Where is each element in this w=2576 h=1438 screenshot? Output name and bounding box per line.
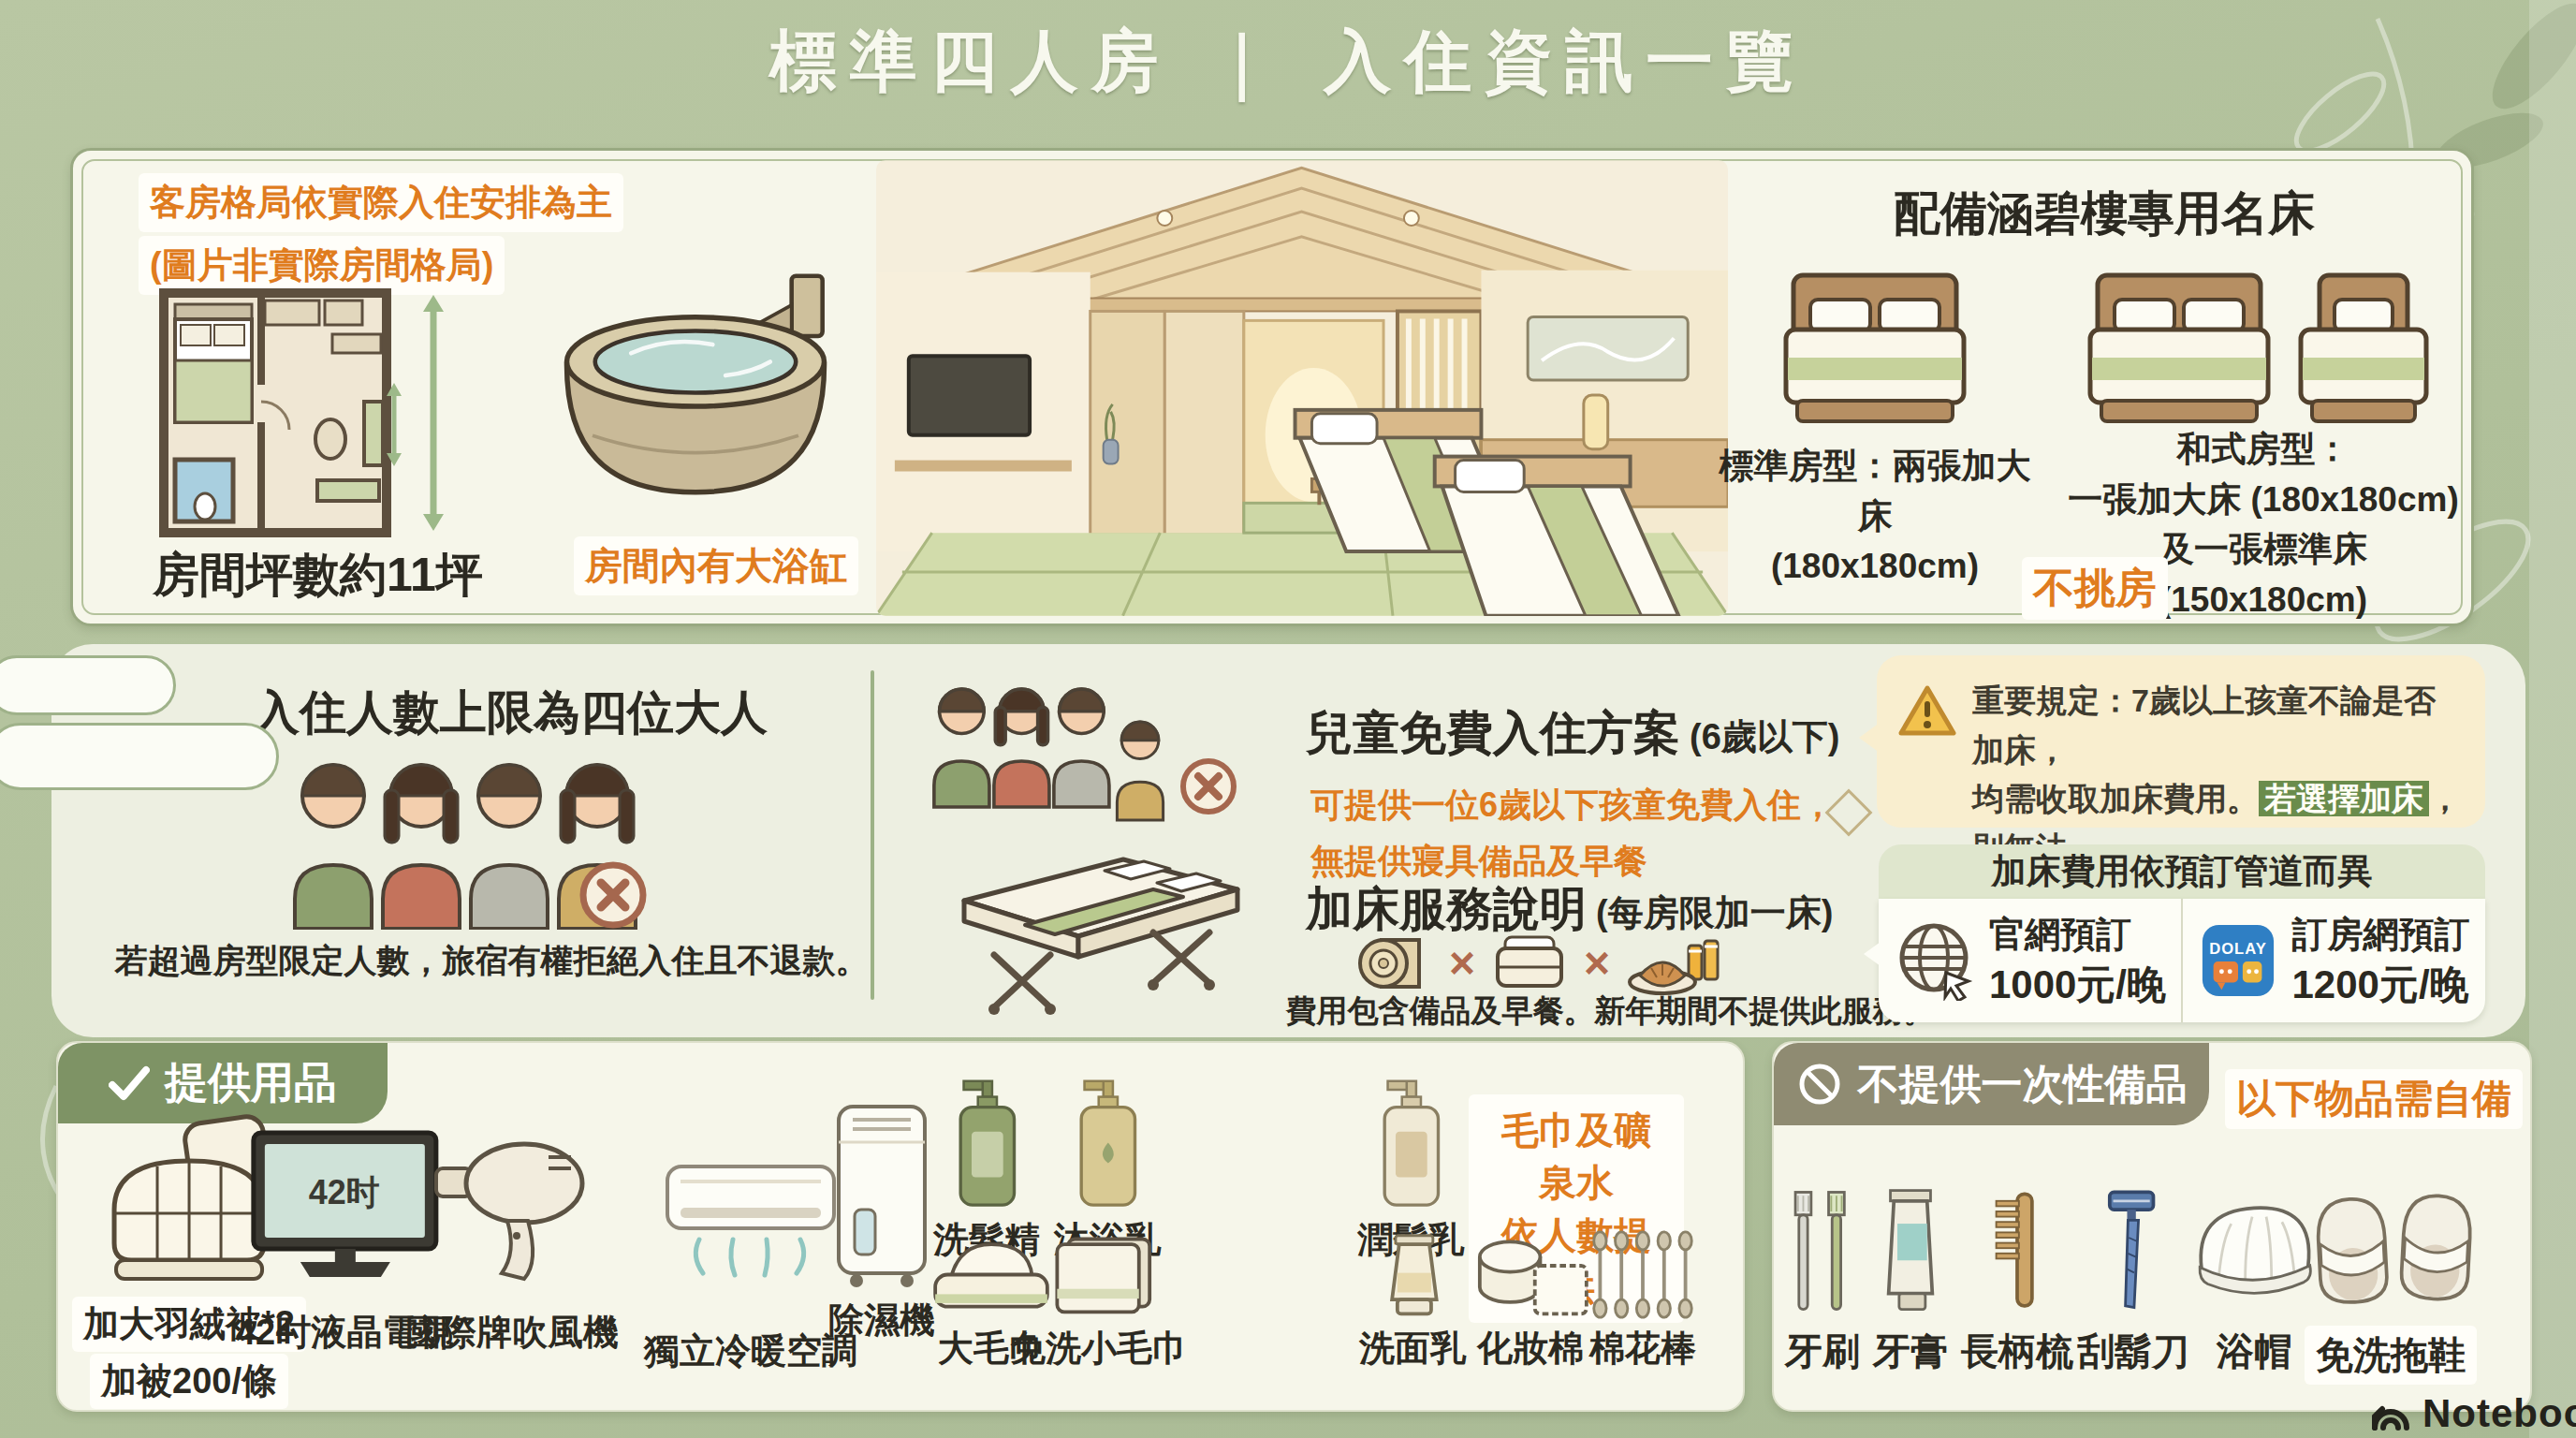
- conditioner-icon: [1359, 1075, 1462, 1211]
- single-bed-icon: [2293, 268, 2434, 432]
- room-overview-card: 客房格局依實際入住安排為主 (圖片非實際房間格局) 房間坪: [70, 148, 2474, 626]
- cotton-swab-icon: [1577, 1230, 1708, 1319]
- not-provided-badge: 不提供一次性備品: [1774, 1043, 2209, 1125]
- razor-icon: [2082, 1185, 2185, 1316]
- important-rule-text: 重要規定：7歲以上孩童不論是否加床， 均需收取加床費用。若選擇加床，則無法 同時…: [1972, 676, 2463, 828]
- extra-bed-icon-row: × ×: [1357, 925, 1720, 1000]
- cloud-motif: [0, 655, 176, 715]
- double-bed-icon: [1777, 268, 1973, 432]
- child-policy-title: 兒童免費入住方案(6歲以下): [1306, 702, 1839, 765]
- bathtub-label: 房間內有大浴缸: [574, 536, 858, 595]
- provided-item-hairdryer: 國際牌吹風機: [405, 1099, 619, 1357]
- no-sign-icon: [1796, 1061, 1843, 1108]
- x-mark-icon: [583, 865, 643, 925]
- globe-cursor-icon: [1894, 920, 1974, 1001]
- child-policy-line1: 可提供一位6歲以下孩童免費入住，: [1310, 783, 1835, 829]
- hairdryer-icon: [431, 1116, 594, 1303]
- not-provided-card: 不提供一次性備品 以下物品需自備 牙刷 牙膏: [1772, 1041, 2532, 1412]
- svg-text:DOLAY: DOLAY: [2209, 940, 2266, 958]
- facewash-icon: [1361, 1230, 1464, 1319]
- notebooklm-icon: [2368, 1394, 2413, 1433]
- occupancy-note: 若超過房型限定人數，旅宿有權拒絕入住且不退款。: [70, 939, 913, 983]
- bed-section-title: 配備涵碧樓專用名床: [1749, 183, 2460, 245]
- right-accent-strip: [2529, 0, 2576, 1438]
- fee-box-title: 加床費用依預訂管道而異: [1879, 844, 2485, 899]
- provided-items-card: 提供用品 加大羽絨被*2 加被200/條 42时 42时液晶電視: [56, 1041, 1745, 1412]
- cloud-motif: [0, 723, 279, 790]
- aircon-icon: [660, 1135, 842, 1322]
- comb-icon: [1970, 1185, 2064, 1316]
- booking-site-fee: DOLAY 訂房網預訂 1200元/晚: [2181, 899, 2485, 1022]
- booking-app-icon: DOLAY: [2199, 921, 2277, 1000]
- blanket-roll-icon: [1357, 930, 1432, 995]
- np-item-comb: 長柄梳: [1961, 1185, 2073, 1377]
- bring-your-own-note: 以下物品需自備: [2225, 1069, 2523, 1129]
- notebooklm-label: NotebookLM: [2422, 1391, 2576, 1436]
- notebooklm-brand: NotebookLM: [2368, 1391, 2576, 1436]
- shampoo-icon: [935, 1075, 1038, 1211]
- four-adults-illustration: [285, 738, 651, 930]
- room-photo-illustration: [876, 160, 1728, 616]
- room-size-label: 房間坪數約11坪: [153, 544, 483, 607]
- policy-band: 入住人數上限為四位大人: [51, 644, 2525, 1037]
- toothpaste-icon: [1859, 1185, 1962, 1316]
- check-icon: [109, 1064, 150, 1102]
- family-with-child-illustration: [931, 663, 1268, 822]
- small-towel-icon: [1036, 1230, 1163, 1319]
- section-divider: [871, 670, 874, 1000]
- np-item-razor: 刮鬍刀: [2077, 1185, 2189, 1377]
- svg-text:42时: 42时: [308, 1173, 379, 1211]
- extra-bed-fee-box: 加床費用依預訂管道而異 官網預訂 1000元/晚: [1879, 844, 2485, 1022]
- infographic-canvas: 標準四人房 ｜ 入住資訊一覽 客房格局依實際入住安排為主 (圖片非實際房間格局): [0, 0, 2576, 1438]
- important-rule-bubble: 重要規定：7歲以上孩童不論是否加床， 均需收取加床費用。若選擇加床，則無法 同時…: [1877, 655, 2485, 828]
- page-title: 標準四人房 ｜ 入住資訊一覽: [0, 17, 2576, 107]
- no-room-choice-label: 不挑房: [1997, 557, 2193, 620]
- x-mark-icon: [1183, 761, 1234, 812]
- provided-item-small-towel: 免洗小毛巾: [1010, 1230, 1188, 1372]
- provided-item-cotton-swab: 棉花棒: [1577, 1230, 1708, 1372]
- np-item-toothpaste: 牙膏: [1859, 1185, 1962, 1377]
- official-site-fee: 官網預訂 1000元/晚: [1879, 899, 2181, 1022]
- folding-bed-illustration: [936, 831, 1259, 1019]
- breakfast-icon: [1627, 929, 1720, 996]
- x-separator: ×: [1449, 937, 1475, 989]
- double-bed-icon: [2081, 268, 2277, 432]
- bodywash-icon: [1056, 1075, 1159, 1211]
- highlighted-phrase: 若選擇加床: [2259, 781, 2429, 816]
- folded-towel-icon: [1492, 930, 1567, 995]
- fee-box-body: 官網預訂 1000元/晚 DOLAY 訂房網預訂: [1879, 899, 2485, 1022]
- bathtub-illustration: [541, 261, 850, 533]
- extra-bed-note: 費用包含備品及早餐。新年期間不提供此服務。: [1273, 990, 1947, 1033]
- provided-item-facewash: 洗面乳: [1359, 1230, 1466, 1372]
- layout-note-line1: 客房格局依實際入住安排為主: [139, 173, 623, 232]
- warning-icon: [1897, 683, 1957, 740]
- np-item-slippers: 免洗拖鞋: [2302, 1185, 2480, 1385]
- standard-room-caption: 標準房型：兩張加大床 (180x180cm): [1706, 441, 2043, 592]
- x-separator: ×: [1584, 937, 1610, 989]
- floorplan-illustration: [153, 282, 461, 544]
- slippers-icon: [2302, 1185, 2480, 1316]
